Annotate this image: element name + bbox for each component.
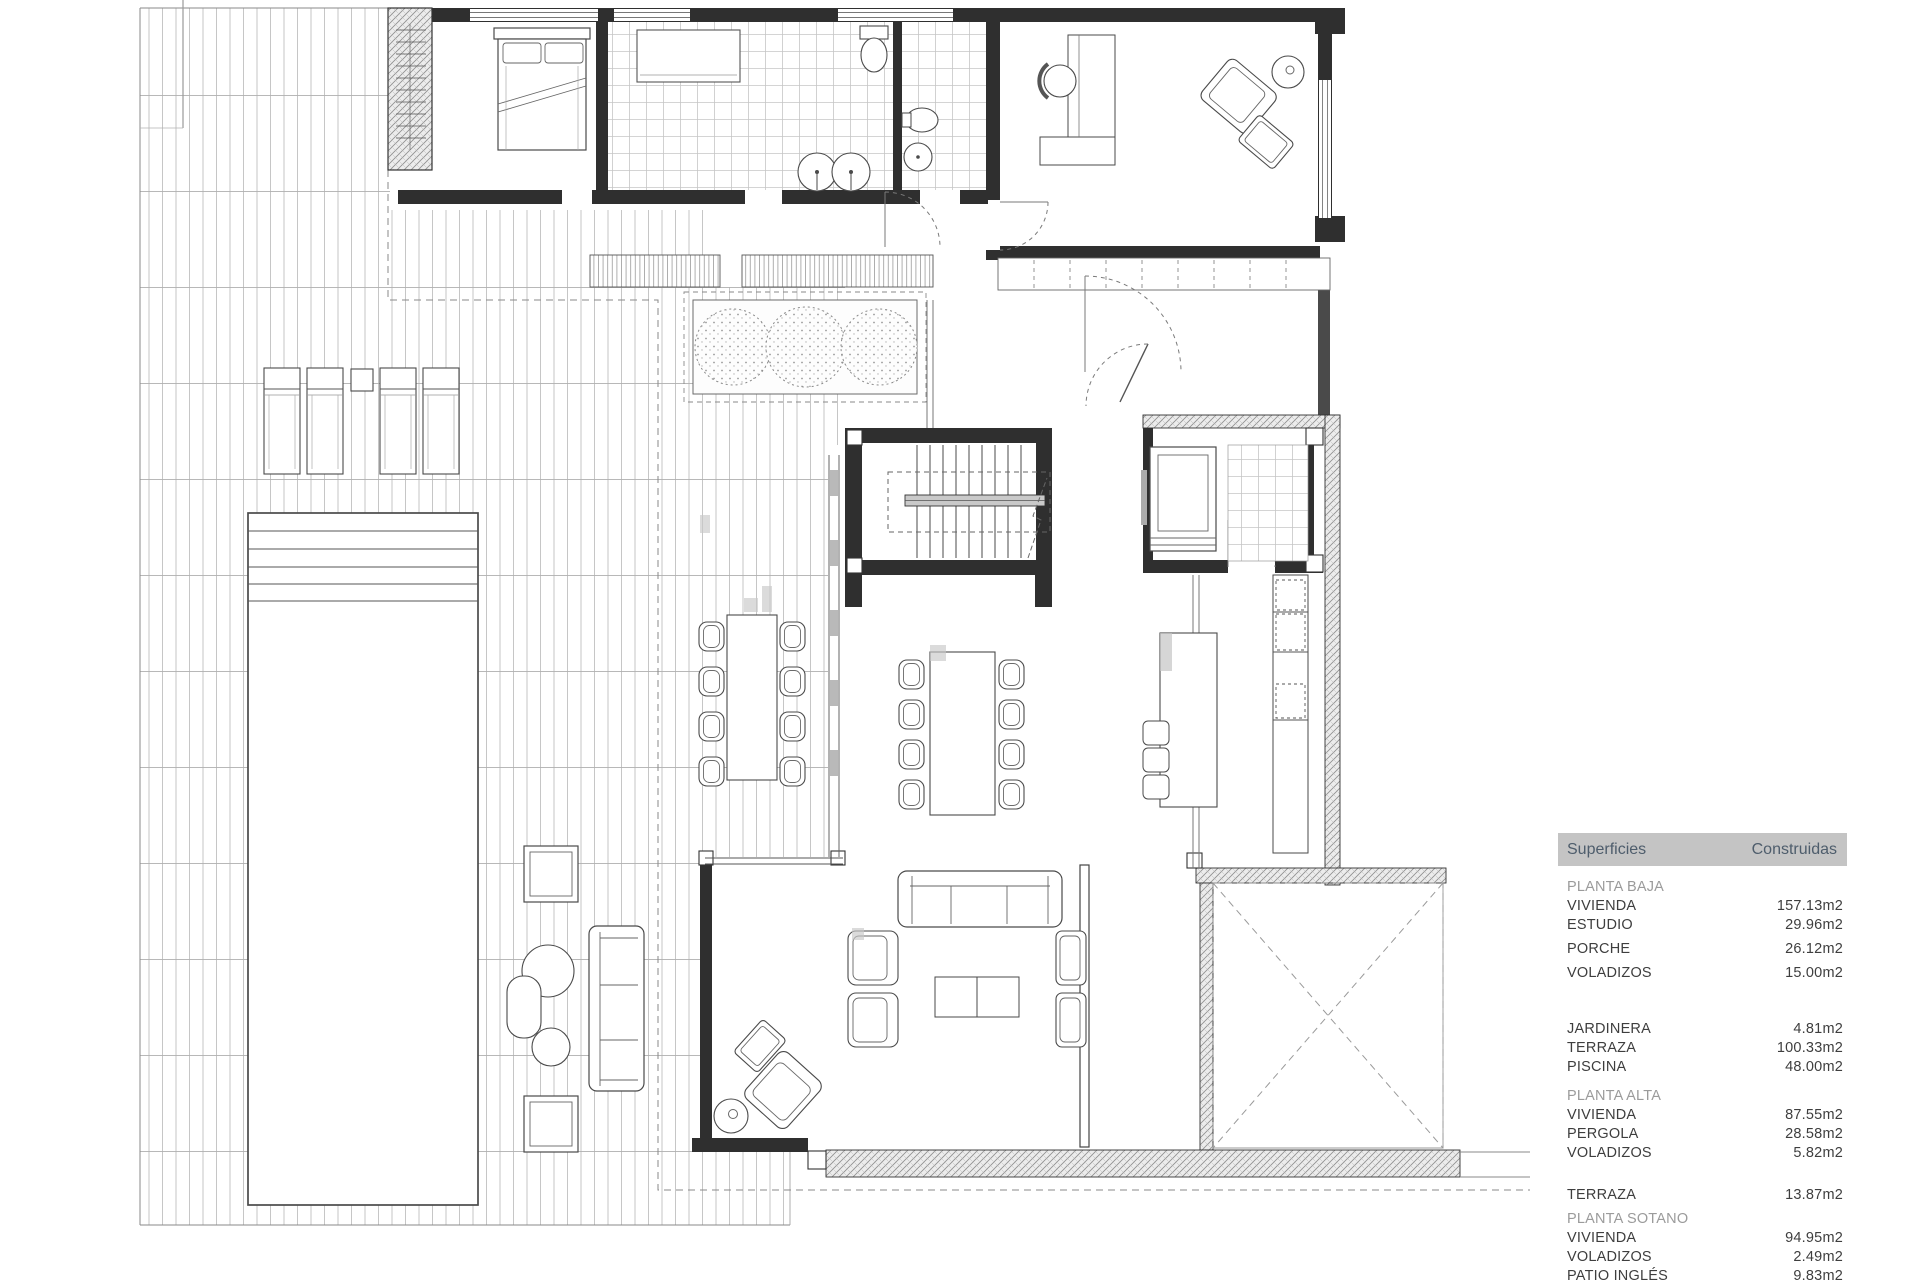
legend-row-value: 157.13m2 bbox=[1777, 897, 1845, 916]
legend-section-row: PLANTA SOTANO bbox=[1567, 1210, 1845, 1229]
legend-row-label: PORCHE bbox=[1567, 940, 1630, 959]
armchair bbox=[1056, 993, 1086, 1047]
living-room-furniture bbox=[714, 871, 1086, 1133]
toilet-icon bbox=[860, 26, 888, 72]
legend-row: VOLADIZOS2.49m2 bbox=[1567, 1248, 1845, 1267]
utility-appliance bbox=[1150, 447, 1216, 551]
stool-icon bbox=[532, 1028, 570, 1066]
legend-row: PORCHE26.12m2 bbox=[1567, 940, 1845, 959]
legend-row-value: 87.55m2 bbox=[1785, 1106, 1845, 1125]
window bbox=[838, 9, 953, 21]
legend-row-value: 15.00m2 bbox=[1785, 964, 1845, 983]
tree-icon bbox=[841, 309, 917, 385]
legend-row-label: VIVIENDA bbox=[1567, 1229, 1636, 1248]
outdoor-sofa bbox=[589, 926, 644, 1091]
legend-row-label: PISCINA bbox=[1567, 1058, 1626, 1077]
side-table-icon bbox=[1272, 56, 1304, 88]
legend-header: Superficies Construidas bbox=[1558, 833, 1847, 866]
armchair bbox=[1056, 931, 1086, 985]
legend-row: VOLADIZOS15.00m2 bbox=[1567, 964, 1845, 983]
legend-rows: PLANTA BAJAVIVIENDA157.13m2ESTUDIO29.96m… bbox=[1558, 866, 1847, 1280]
legend-row-label: PLANTA BAJA bbox=[1567, 878, 1664, 897]
tree-icon bbox=[695, 309, 771, 385]
legend-row-label: ESTUDIO bbox=[1567, 916, 1633, 935]
tree-icon bbox=[766, 307, 846, 387]
legend-row: VIVIENDA87.55m2 bbox=[1567, 1106, 1845, 1125]
desk bbox=[1040, 35, 1115, 165]
legend-row-value: 5.82m2 bbox=[1793, 1144, 1845, 1163]
sofa-icon bbox=[898, 871, 1062, 927]
legend-row: TERRAZA13.87m2 bbox=[1567, 1186, 1845, 1205]
window bbox=[1319, 80, 1331, 218]
office-chair-icon bbox=[1039, 64, 1076, 98]
legend-row-value: 4.81m2 bbox=[1793, 1020, 1845, 1039]
legend-row-value: 48.00m2 bbox=[1785, 1058, 1845, 1077]
legend-row-value: 13.87m2 bbox=[1785, 1186, 1845, 1205]
legend-row-label: PATIO INGLÉS bbox=[1567, 1267, 1668, 1280]
shower bbox=[637, 30, 740, 82]
side-table bbox=[351, 369, 373, 391]
legend-row: PATIO INGLÉS9.83m2 bbox=[1567, 1267, 1845, 1280]
legend-row-label: VIVIENDA bbox=[1567, 897, 1636, 916]
bar-stools bbox=[1143, 721, 1169, 799]
legend-header-col1: Superficies bbox=[1567, 841, 1646, 859]
legend-row-label: PERGOLA bbox=[1567, 1125, 1639, 1144]
window bbox=[470, 9, 598, 21]
pool bbox=[248, 513, 478, 1205]
legend-row-value: 26.12m2 bbox=[1785, 940, 1845, 959]
kitchen bbox=[1143, 445, 1308, 853]
legend-row-label: VOLADIZOS bbox=[1567, 1248, 1652, 1267]
legend-row-label: PLANTA ALTA bbox=[1567, 1087, 1661, 1106]
study-furniture bbox=[1039, 35, 1304, 170]
side-table-icon bbox=[714, 1099, 748, 1133]
legend-row: JARDINERA4.81m2 bbox=[1567, 1020, 1845, 1039]
legend-row: PISCINA48.00m2 bbox=[1567, 1058, 1845, 1077]
window bbox=[1141, 470, 1147, 525]
bed-icon bbox=[494, 28, 590, 150]
legend-row: PERGOLA28.58m2 bbox=[1567, 1125, 1845, 1144]
areas-legend-table: Superficies Construidas PLANTA BAJAVIVIE… bbox=[1558, 833, 1847, 1280]
legend-row: VIVIENDA94.95m2 bbox=[1567, 1229, 1845, 1248]
legend-row: ESTUDIO29.96m2 bbox=[1567, 916, 1845, 935]
legend-row-value: 29.96m2 bbox=[1785, 916, 1845, 935]
legend-row-value: 28.58m2 bbox=[1785, 1125, 1845, 1144]
armchair bbox=[848, 993, 898, 1047]
legend-header-col2: Construidas bbox=[1752, 841, 1837, 859]
legend-row-value: 94.95m2 bbox=[1785, 1229, 1845, 1248]
sink-icon bbox=[832, 153, 870, 191]
door-arc bbox=[1086, 344, 1148, 406]
bathrooms bbox=[608, 22, 986, 191]
utility-tiled-floor bbox=[1228, 445, 1308, 561]
sink-icon bbox=[798, 153, 836, 191]
outdoor-chair bbox=[524, 1096, 578, 1152]
staircase bbox=[888, 445, 1050, 558]
legend-row-label: TERRAZA bbox=[1567, 1039, 1636, 1058]
legend-row-value: 2.49m2 bbox=[1793, 1248, 1845, 1267]
window bbox=[614, 9, 690, 21]
legend-row-label: VOLADIZOS bbox=[1567, 1144, 1652, 1163]
legend-row-label: PLANTA SOTANO bbox=[1567, 1210, 1688, 1229]
legend-row-value: 100.33m2 bbox=[1777, 1039, 1845, 1058]
legend-row-label: VOLADIZOS bbox=[1567, 964, 1652, 983]
legend-row-value: 9.83m2 bbox=[1793, 1267, 1845, 1280]
ottoman bbox=[507, 976, 541, 1038]
garage-area bbox=[1213, 883, 1443, 1148]
legend-section-row: PLANTA ALTA bbox=[1567, 1087, 1845, 1106]
door-arc bbox=[1000, 202, 1048, 250]
indoor-dining-table bbox=[899, 652, 1024, 815]
legend-row-label: JARDINERA bbox=[1567, 1020, 1651, 1039]
legend-row: VOLADIZOS5.82m2 bbox=[1567, 1144, 1845, 1163]
kitchen-counter bbox=[1273, 575, 1308, 853]
legend-row: VIVIENDA157.13m2 bbox=[1567, 897, 1845, 916]
legend-row-label: TERRAZA bbox=[1567, 1186, 1636, 1205]
planter-trees bbox=[684, 292, 926, 402]
coffee-table bbox=[935, 977, 1019, 1017]
small-sink-icon bbox=[904, 143, 932, 171]
floor-plan-page: Superficies Construidas PLANTA BAJAVIVIE… bbox=[0, 0, 1920, 1280]
legend-section-row: PLANTA BAJA bbox=[1567, 878, 1845, 897]
outdoor-chair bbox=[524, 846, 578, 902]
legend-row-label: VIVIENDA bbox=[1567, 1106, 1636, 1125]
legend-row: TERRAZA100.33m2 bbox=[1567, 1039, 1845, 1058]
